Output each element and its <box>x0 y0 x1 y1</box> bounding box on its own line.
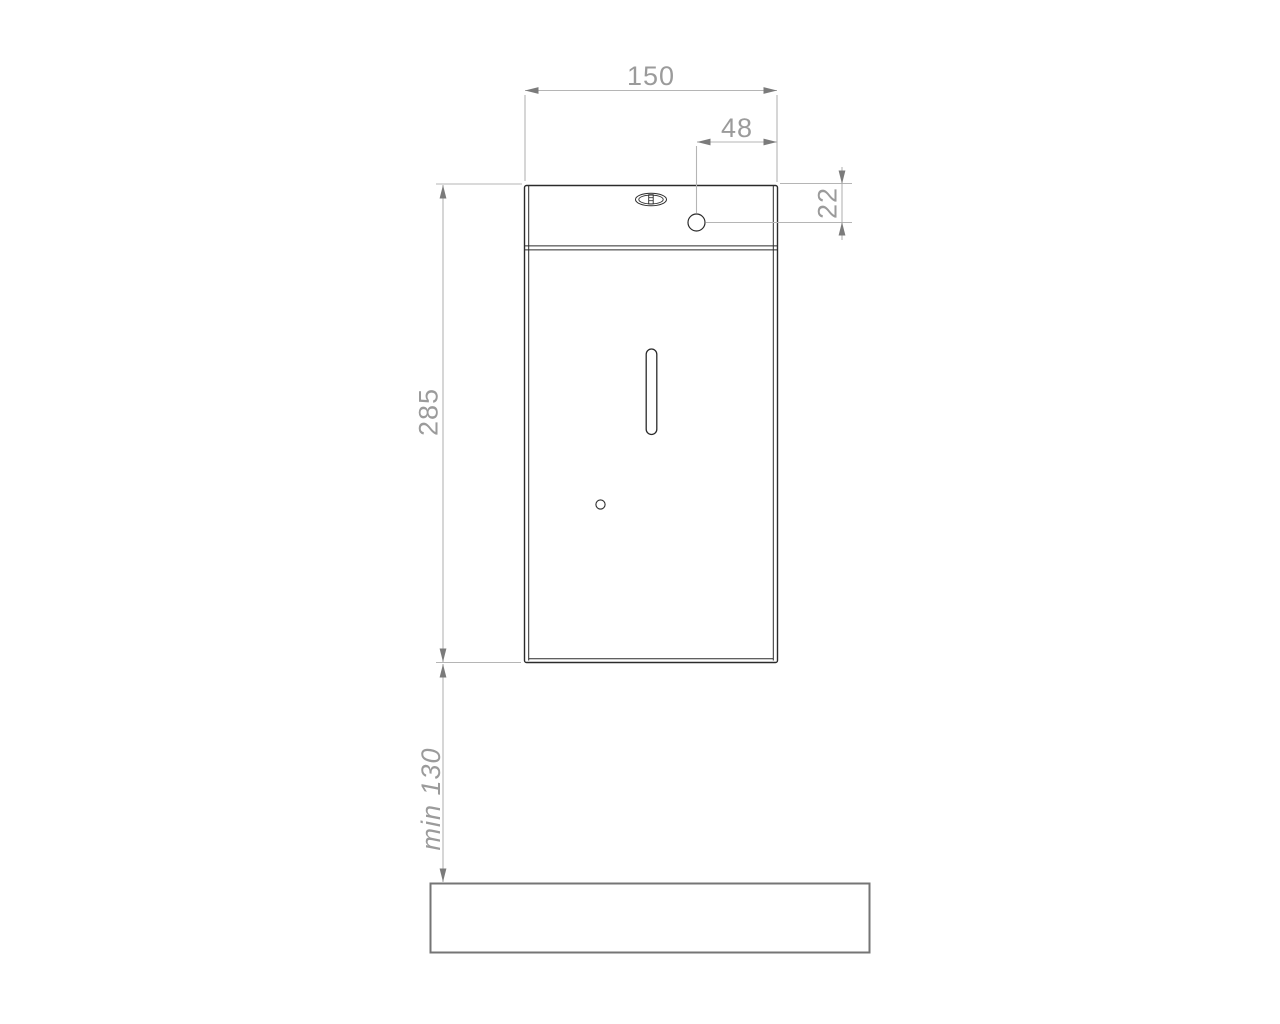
dimension-height: 285 <box>414 184 523 663</box>
arrow-up-icon <box>440 664 447 678</box>
sensor-hole <box>688 214 705 231</box>
dimension-clearance-label: min 130 <box>416 747 446 850</box>
arrow-right-icon <box>764 87 778 94</box>
dimension-hole-offset-label: 48 <box>721 113 753 143</box>
arrow-up-icon <box>440 185 447 199</box>
technical-drawing-canvas: 150 48 22 285 <box>0 0 1280 1024</box>
arrow-down-icon <box>440 869 447 883</box>
arrow-down-icon <box>440 649 447 663</box>
arrow-right-icon <box>764 139 778 146</box>
dimension-hole-drop-label: 22 <box>813 187 843 219</box>
dimension-width-label: 150 <box>627 61 675 91</box>
arrow-down-icon <box>839 171 846 185</box>
dispenser-body <box>525 186 778 663</box>
counter-surface <box>431 884 870 953</box>
arrow-left-icon <box>525 87 539 94</box>
drawing-page: 150 48 22 285 <box>0 0 1280 1024</box>
arrow-left-icon <box>697 139 711 146</box>
arrow-up-icon <box>839 222 846 236</box>
dimension-clearance: min 130 <box>416 664 446 882</box>
sight-slot <box>646 349 657 435</box>
dimension-height-label: 285 <box>414 388 444 436</box>
